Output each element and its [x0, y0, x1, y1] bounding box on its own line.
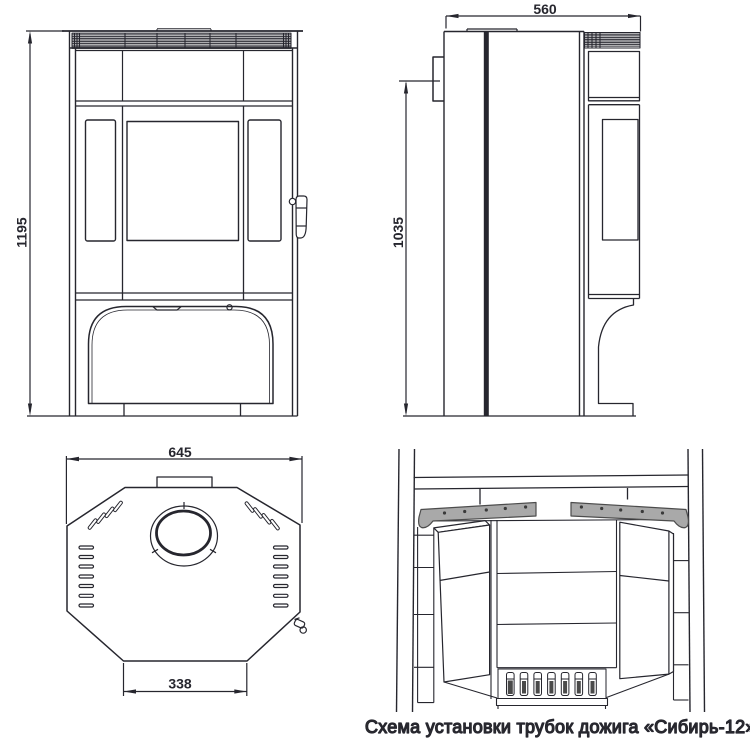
- svg-text:645: 645: [168, 444, 192, 460]
- svg-text:1195: 1195: [14, 217, 30, 248]
- svg-text:560: 560: [533, 1, 557, 17]
- svg-text:338: 338: [168, 676, 192, 692]
- svg-text:1035: 1035: [390, 217, 406, 248]
- svg-text:Схема установки трубок дожига: Схема установки трубок дожига «Сибирь-12…: [365, 717, 750, 737]
